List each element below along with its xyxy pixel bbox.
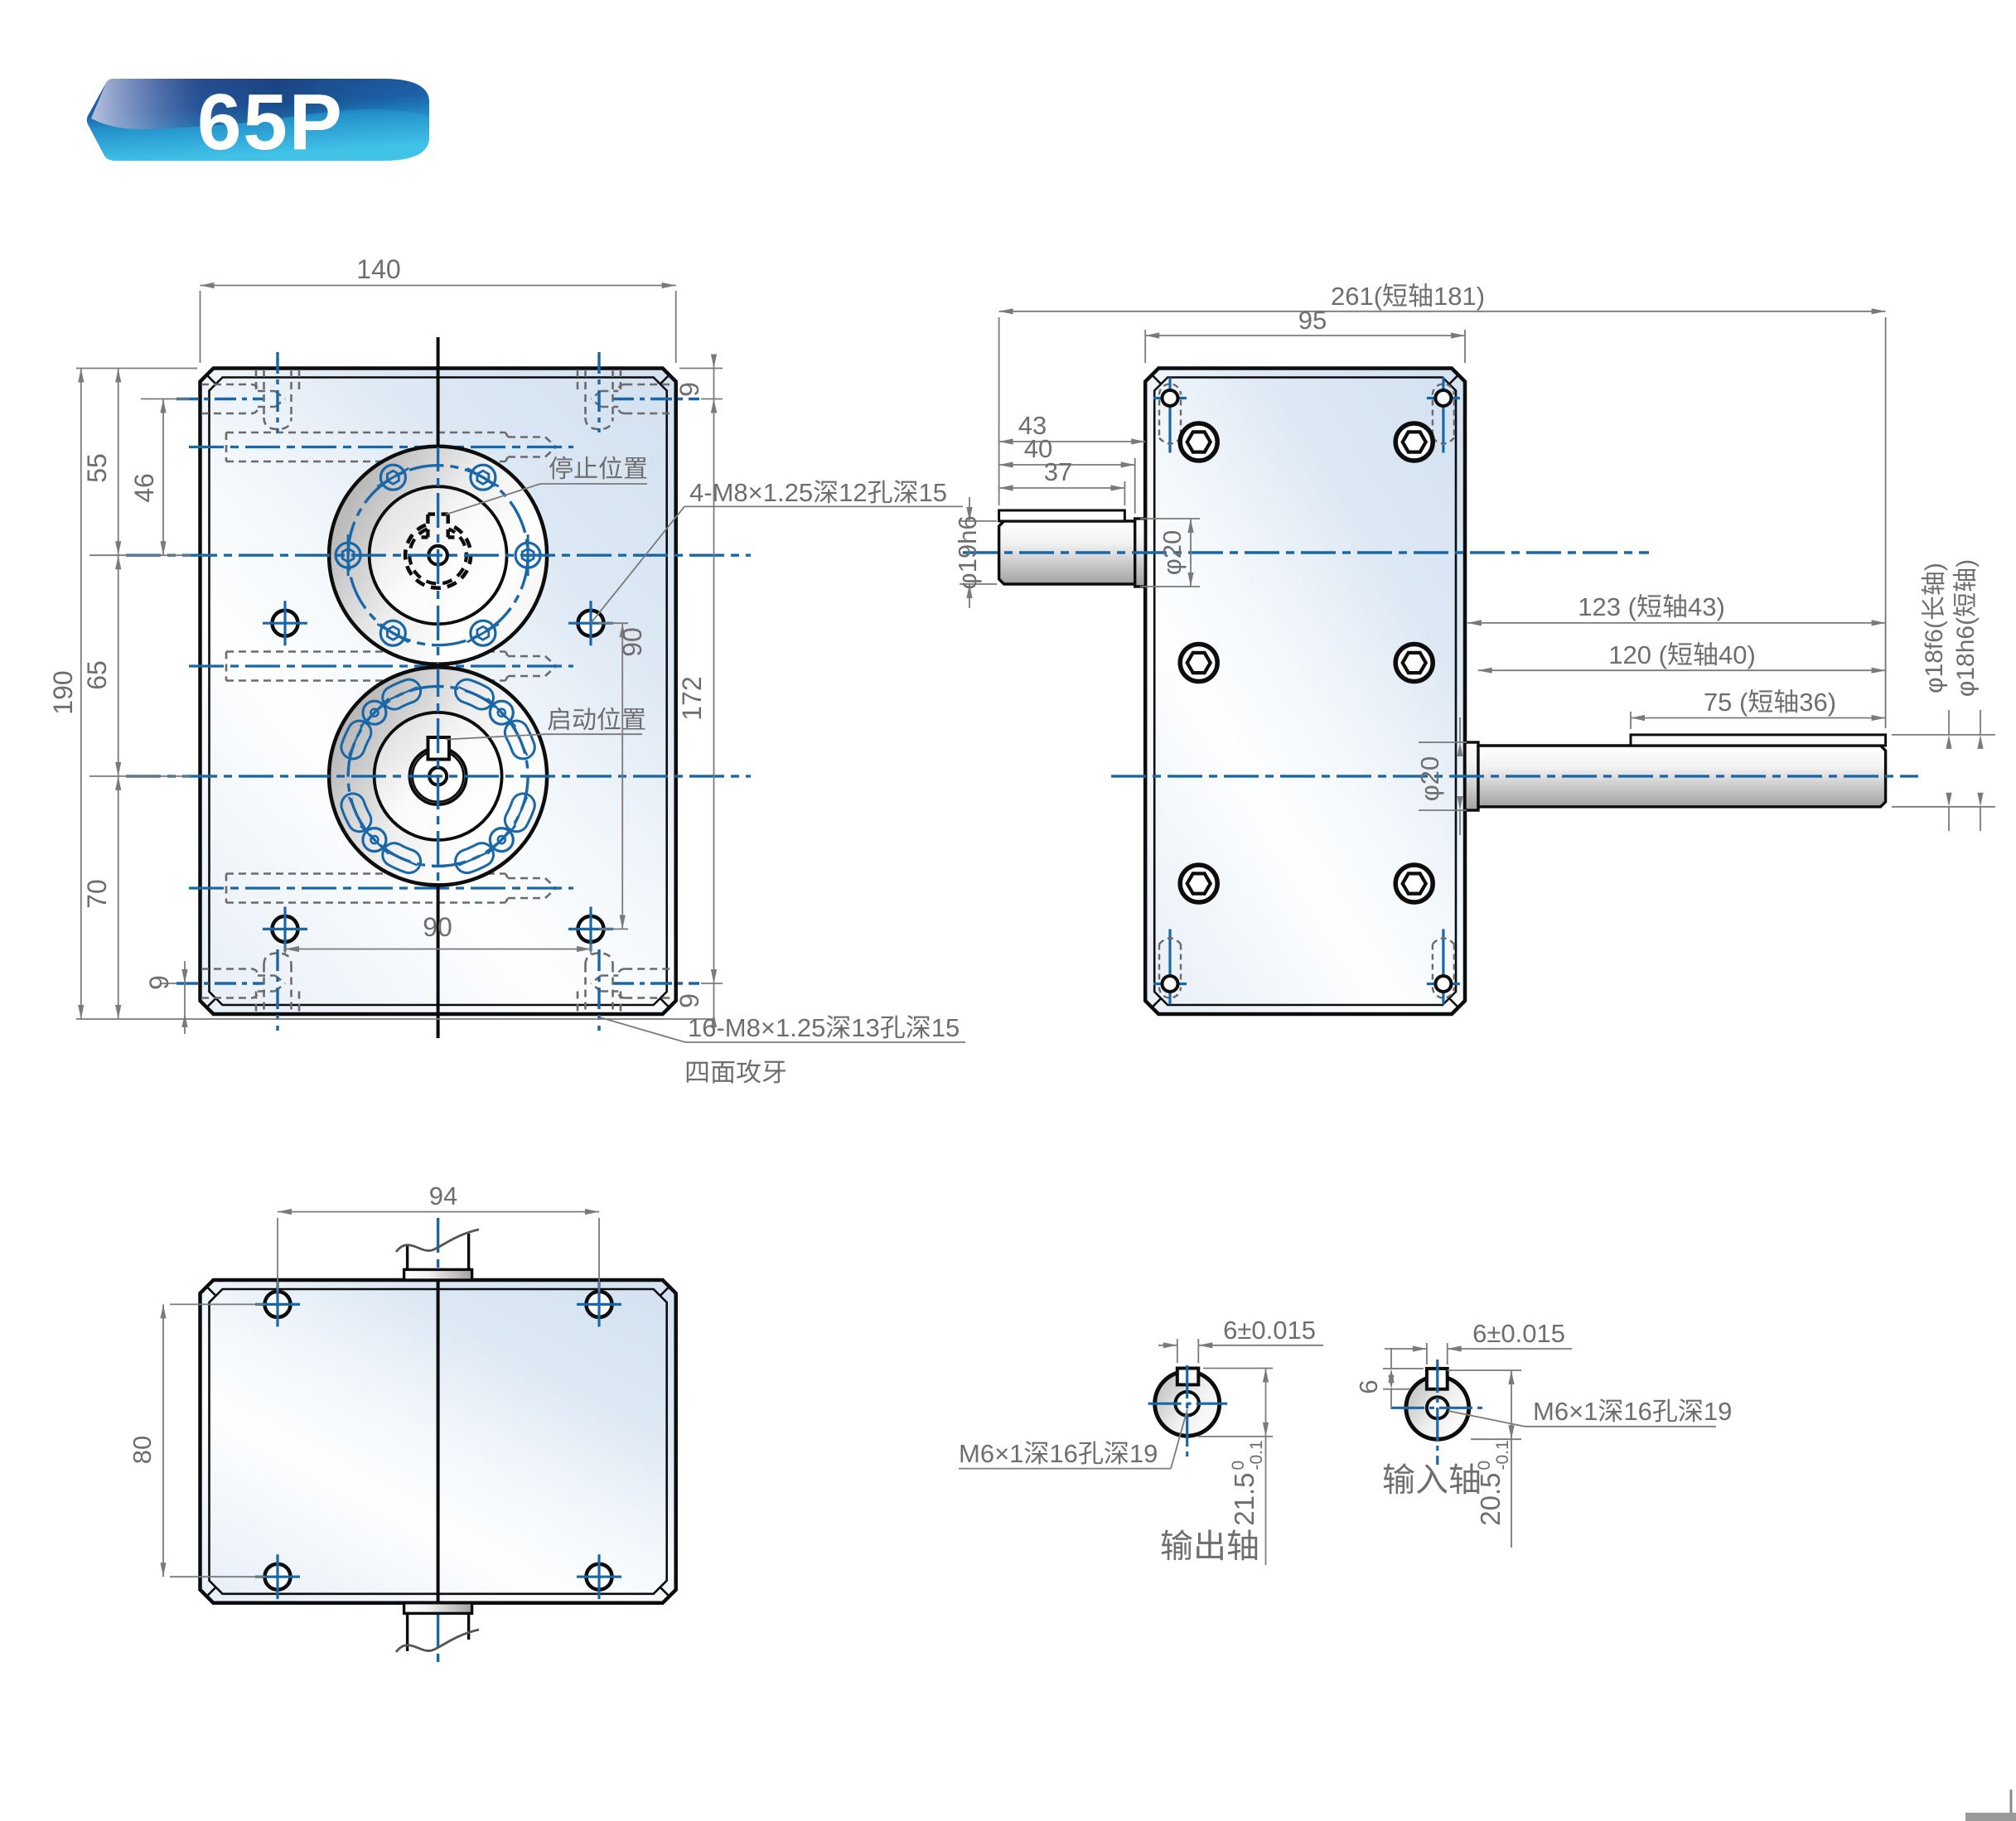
svg-text:-0.1: -0.1	[1493, 1440, 1512, 1470]
svg-text:9: 9	[674, 993, 704, 1008]
svg-text:-0.1: -0.1	[1247, 1440, 1266, 1470]
svg-text:43): 43)	[1688, 592, 1725, 621]
svg-text:36): 36)	[1799, 688, 1836, 717]
svg-text:46: 46	[129, 473, 159, 503]
svg-text:90: 90	[617, 627, 647, 657]
svg-text:M6×1: M6×1	[1533, 1397, 1598, 1426]
svg-text:95: 95	[1298, 306, 1327, 335]
svg-text:15: 15	[919, 478, 947, 507]
svg-text:16: 16	[1623, 1397, 1651, 1426]
svg-text:6±0.015: 6±0.015	[1472, 1319, 1565, 1348]
svg-text:55: 55	[82, 453, 112, 483]
svg-text:80: 80	[128, 1436, 157, 1464]
svg-text:9: 9	[144, 975, 174, 990]
svg-text:16-M8×1.25: 16-M8×1.25	[688, 1013, 825, 1042]
svg-text:123 (: 123 (	[1578, 592, 1636, 621]
svg-text:12: 12	[839, 478, 867, 507]
svg-text:20.5: 20.5	[1475, 1472, 1506, 1525]
svg-text:15: 15	[931, 1013, 960, 1042]
svg-text:0: 0	[1475, 1461, 1494, 1471]
svg-text:40): 40)	[1719, 640, 1756, 669]
svg-text:16: 16	[1049, 1439, 1077, 1468]
svg-text:90: 90	[423, 912, 452, 942]
svg-text:13: 13	[851, 1013, 879, 1042]
svg-text:6±0.015: 6±0.015	[1223, 1316, 1316, 1345]
svg-text:M6×1: M6×1	[959, 1439, 1023, 1468]
svg-text:94: 94	[429, 1181, 457, 1210]
svg-text:140: 140	[356, 254, 400, 284]
svg-text:6: 6	[1354, 1379, 1383, 1394]
svg-text:φ18f6(: φ18f6(	[1921, 621, 1948, 693]
svg-text:φ20: φ20	[1158, 530, 1187, 576]
svg-text:φ20: φ20	[1415, 756, 1444, 802]
svg-text:190: 190	[48, 670, 78, 714]
svg-text:19: 19	[1704, 1397, 1732, 1426]
svg-text:75 (: 75 (	[1704, 688, 1748, 717]
svg-text:0: 0	[1229, 1461, 1248, 1471]
svg-text:19: 19	[1129, 1439, 1158, 1468]
svg-text:65: 65	[82, 660, 112, 690]
svg-text:φ19h6: φ19h6	[953, 515, 982, 589]
svg-text:65P: 65P	[197, 78, 344, 167]
svg-text:9: 9	[674, 382, 704, 397]
svg-text:261(: 261(	[1331, 282, 1383, 311]
svg-text:): )	[1921, 563, 1948, 571]
svg-text:φ18h6(: φ18h6(	[1952, 617, 1980, 697]
svg-text:172: 172	[677, 676, 707, 720]
svg-text:21.5: 21.5	[1229, 1472, 1259, 1525]
svg-text:): )	[1952, 559, 1980, 568]
svg-text:37: 37	[1044, 457, 1072, 486]
svg-text:120 (: 120 (	[1608, 640, 1667, 669]
svg-text:70: 70	[82, 879, 112, 909]
svg-text:181): 181)	[1433, 282, 1485, 311]
svg-text:4-M8×1.25: 4-M8×1.25	[689, 478, 813, 507]
